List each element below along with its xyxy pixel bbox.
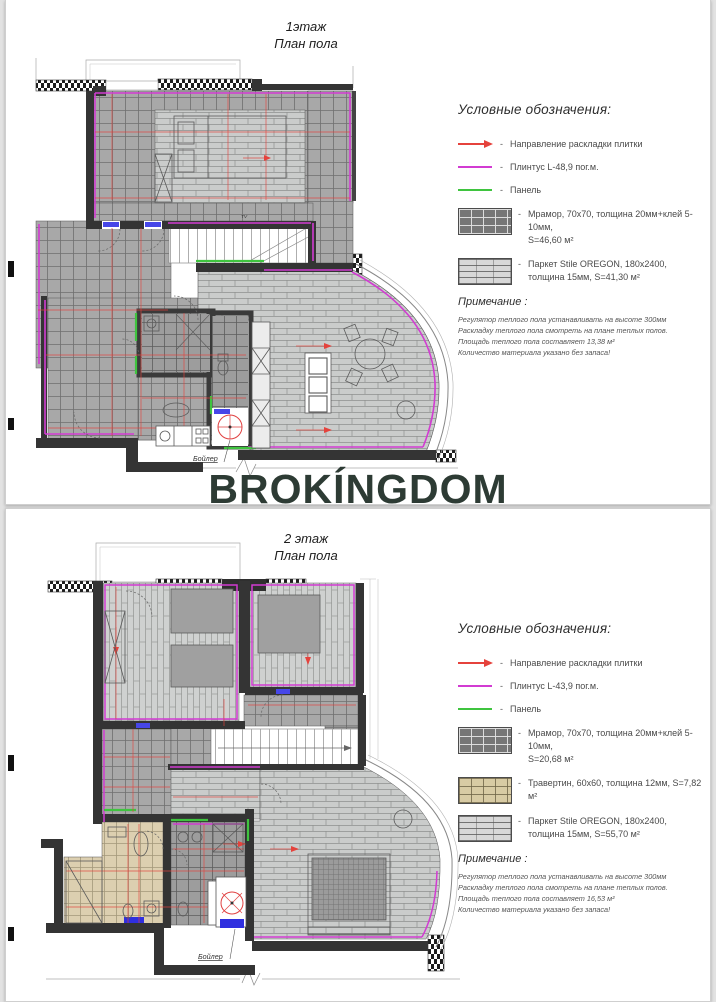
marble-swatch [458,208,512,235]
panel-line-icon [458,189,494,191]
floor-plan-2: Бойлер [8,519,460,999]
tile-direction-arrow-icon [458,143,494,145]
floor-1-title: 1этаж План пола [221,19,391,53]
note-line: Площадь теплого пола составляет 16,53 м² [458,894,712,905]
legend-item-panel: - Панель [458,185,712,195]
material-line1: Паркет Stile OREGON, 180х2400, [528,259,667,269]
tile-direction-arrow-icon [458,662,494,664]
note-line: Регулятор теплого пола устанавливать на … [458,315,712,326]
material-parquet: - Паркет Stile OREGON, 180х2400, толщина… [458,815,712,842]
floor-plan-1: TV Бойлер [8,58,460,478]
legend-1-heading: Условные обозначения: [458,102,712,117]
material-line1: Паркет Stile OREGON, 180х2400, [528,816,667,826]
legend-item-label: Направление раскладки плитки [510,139,643,149]
plinth-line-icon [458,685,494,687]
material-line1: Мрамор, 70х70, толщина 20мм+клей 5-10мм, [528,209,693,232]
boiler-label-1: Бойлер [193,454,218,463]
legend-floor-1: Условные обозначения: - Направление раск… [458,102,712,359]
boiler-symbol [216,877,246,959]
tv-label: TV [241,214,248,220]
legend-item-tile-direction: - Направление раскладки плитки [458,139,712,149]
material-line1: Травертин, 60х60, толщина 12мм, S=7,82 м… [528,778,701,801]
boiler-label-2: Бойлер [198,952,223,961]
brokingdom-watermark: BROKÍNGDOM [0,469,716,510]
notes-1: Регулятор теплого пола устанавливать на … [458,315,712,359]
material-marble: - Мрамор, 70х70, толщина 20мм+клей 5-10м… [458,208,712,247]
legend-item-plinth: - Плинтус L-48,9 пог.м. [458,162,712,172]
wc-floor [212,316,248,411]
staircase [169,224,310,263]
note-heading-2: Примечание : [458,853,712,865]
material-parquet: - Паркет Stile OREGON, 180х2400, толщина… [458,258,712,285]
note-line: Регулятор теплого пола устанавливать на … [458,872,712,883]
material-travertine: - Травертин, 60х60, толщина 12мм, S=7,82… [458,777,712,804]
legend-item-label: Плинтус L-43,9 пог.м. [510,681,599,691]
legend-item-plinth: - Плинтус L-43,9 пог.м. [458,681,712,691]
legend-item-label: Плинтус L-48,9 пог.м. [510,162,599,172]
legend-item-label: Панель [510,704,541,714]
note-line: Раскладку теплого пола смотреть на плане… [458,326,712,337]
marble-swatch [458,727,512,754]
material-marble: - Мрамор, 70х70, толщина 20мм+клей 5-10м… [458,727,712,766]
sheet-floor-2: 2 этаж План пола [5,508,711,1002]
legend-item-label: Направление раскладки плитки [510,658,643,668]
notes-2: Регулятор теплого пола устанавливать на … [458,872,712,916]
legend-item-panel: - Панель [458,704,712,714]
floor-1-title-line1: 1этаж [221,19,391,36]
note-line: Количество материала указано без запаса! [458,348,712,359]
note-line: Раскладку теплого пола смотреть на плане… [458,883,712,894]
floor-1-title-line2: План пола [221,36,391,53]
material-line2: толщина 15мм, S=41,30 м² [528,272,640,282]
material-line1: Мрамор, 70х70, толщина 20мм+клей 5-10мм, [528,728,693,751]
parquet-swatch [458,258,512,285]
note-heading-1: Примечание : [458,296,712,308]
bathroom-floor [142,314,210,372]
note-line: Площадь теплого пола составляет 13,38 м² [458,337,712,348]
staircase [211,729,358,766]
note-line: Количество материала указано без запаса! [458,905,712,916]
sheet-floor-1: 1этаж План пола [5,0,711,505]
material-line2: толщина 15мм, S=55,70 м² [528,829,640,839]
material-line2: S=20,68 м² [528,754,573,764]
legend-item-label: Панель [510,185,541,195]
plinth-line-icon [458,166,494,168]
parquet-swatch [458,815,512,842]
legend-floor-2: Условные обозначения: - Направление раск… [458,621,712,916]
panel-line-icon [458,708,494,710]
travertine-swatch [458,777,512,804]
legend-item-tile-direction: - Направление раскладки плитки [458,658,712,668]
material-line2: S=46,60 м² [528,235,573,245]
legend-2-heading: Условные обозначения: [458,621,712,636]
